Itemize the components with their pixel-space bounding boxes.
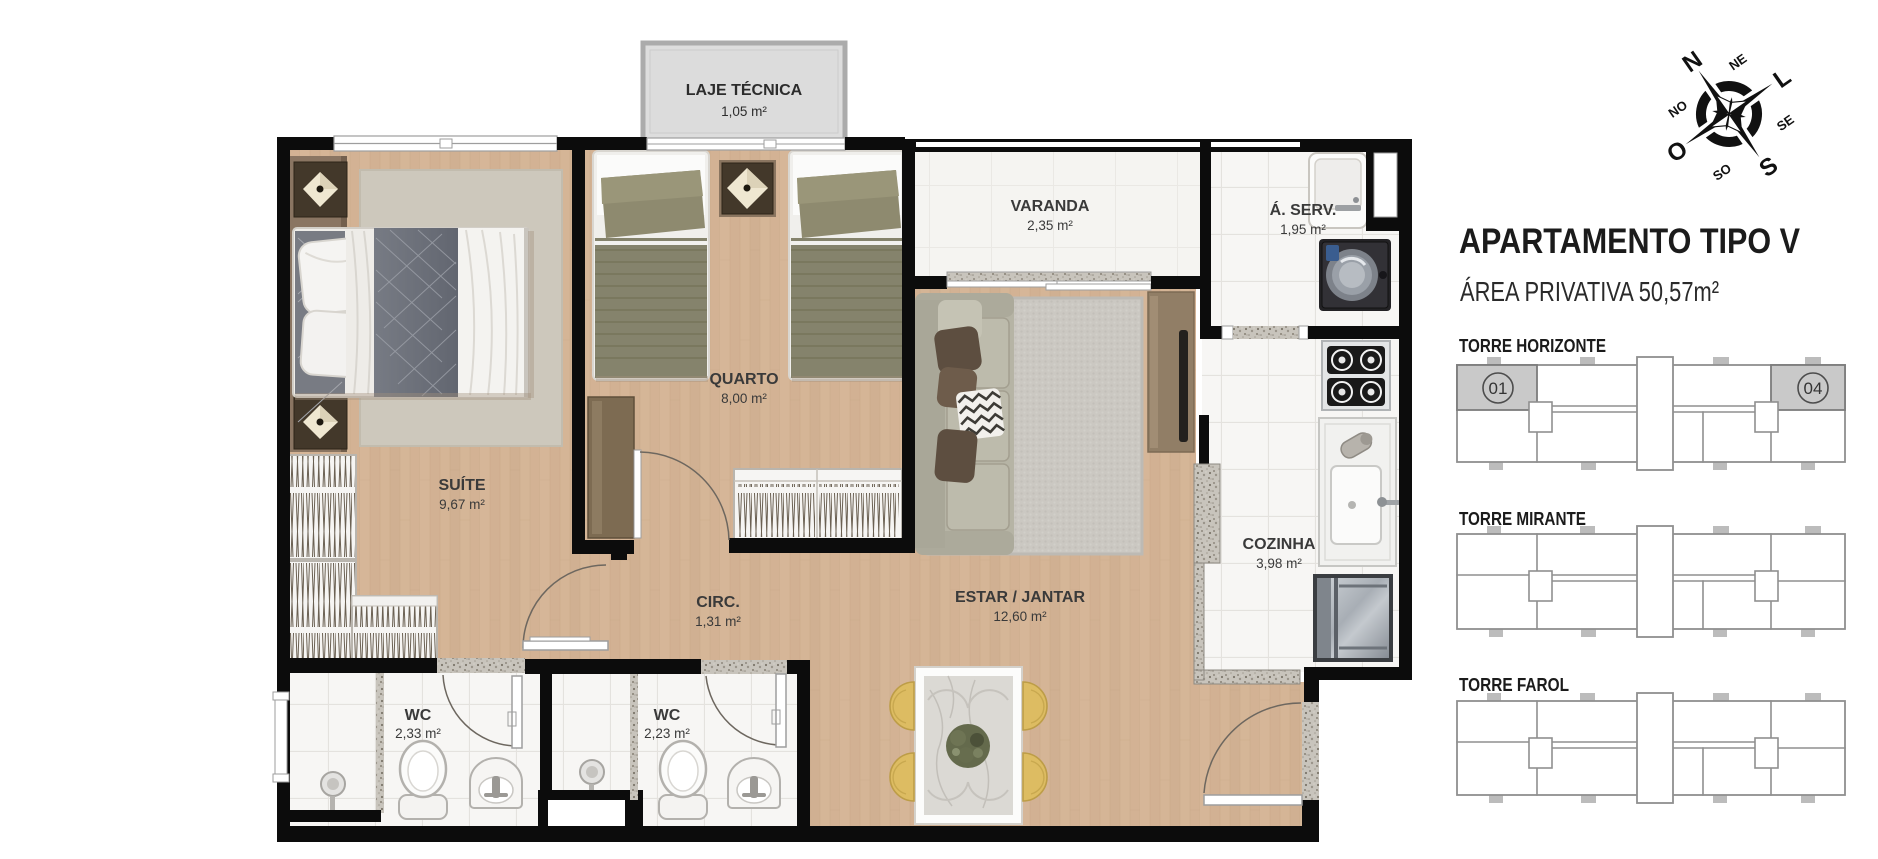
svg-text:WC: WC xyxy=(654,707,681,724)
svg-text:8,00 m²: 8,00 m² xyxy=(721,391,767,406)
svg-text:Á. SERV.: Á. SERV. xyxy=(1270,200,1337,219)
svg-text:WC: WC xyxy=(405,707,432,724)
svg-text:COZINHA: COZINHA xyxy=(1243,536,1316,553)
svg-text:ESTAR / JANTAR: ESTAR / JANTAR xyxy=(955,589,1086,606)
svg-text:3,98 m²: 3,98 m² xyxy=(1256,556,1302,571)
svg-text:1,05 m²: 1,05 m² xyxy=(721,104,767,119)
svg-text:CIRC.: CIRC. xyxy=(696,594,740,611)
svg-text:SUÍTE: SUÍTE xyxy=(438,475,485,494)
svg-text:2,35 m²: 2,35 m² xyxy=(1027,218,1073,233)
svg-text:1,95 m²: 1,95 m² xyxy=(1280,222,1326,237)
svg-text:04: 04 xyxy=(1804,379,1823,398)
svg-text:LAJE TÉCNICA: LAJE TÉCNICA xyxy=(686,80,803,99)
svg-text:VARANDA: VARANDA xyxy=(1011,198,1090,215)
svg-text:1,31 m²: 1,31 m² xyxy=(695,614,741,629)
svg-text:APARTAMENTO TIPO V: APARTAMENTO TIPO V xyxy=(1459,222,1801,261)
svg-text:12,60 m²: 12,60 m² xyxy=(993,609,1047,624)
svg-text:2,33 m²: 2,33 m² xyxy=(395,726,441,741)
svg-text:TORRE FAROL: TORRE FAROL xyxy=(1459,675,1569,695)
svg-text:QUARTO: QUARTO xyxy=(709,371,778,388)
svg-text:TORRE MIRANTE: TORRE MIRANTE xyxy=(1459,509,1586,529)
svg-text:9,67 m²: 9,67 m² xyxy=(439,497,485,512)
svg-text:ÁREA PRIVATIVA 50,57m²: ÁREA PRIVATIVA 50,57m² xyxy=(1460,276,1719,307)
svg-text:2,23 m²: 2,23 m² xyxy=(644,726,690,741)
svg-text:TORRE HORIZONTE: TORRE HORIZONTE xyxy=(1459,336,1606,356)
svg-text:01: 01 xyxy=(1489,379,1508,398)
